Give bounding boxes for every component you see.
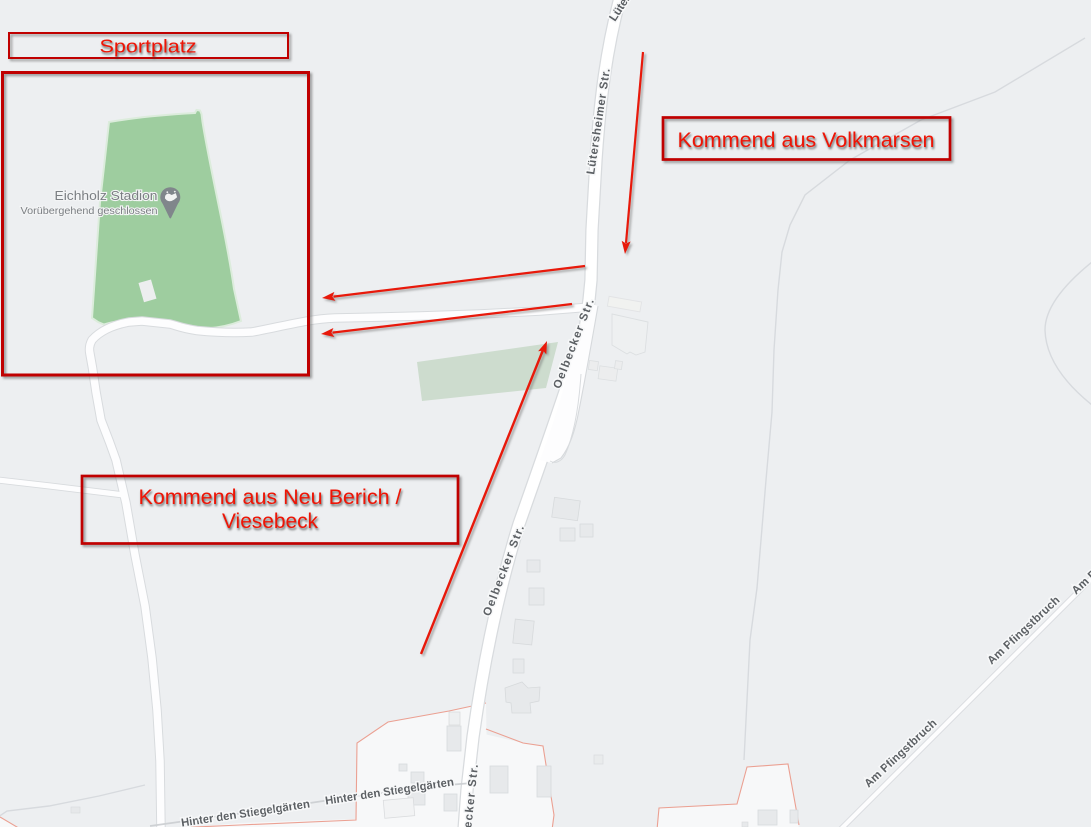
svg-text:Sportplatz: Sportplatz <box>100 37 197 57</box>
svg-text:Kommend aus Neu Berich /: Kommend aus Neu Berich / <box>139 486 402 509</box>
svg-text:Vorübergehend geschlossen: Vorübergehend geschlossen <box>21 205 158 217</box>
svg-text:Kommend aus Volkmarsen: Kommend aus Volkmarsen <box>678 129 935 152</box>
svg-text:Eichholz Stadion: Eichholz Stadion <box>55 188 158 203</box>
svg-text:Viesebeck: Viesebeck <box>222 510 318 533</box>
